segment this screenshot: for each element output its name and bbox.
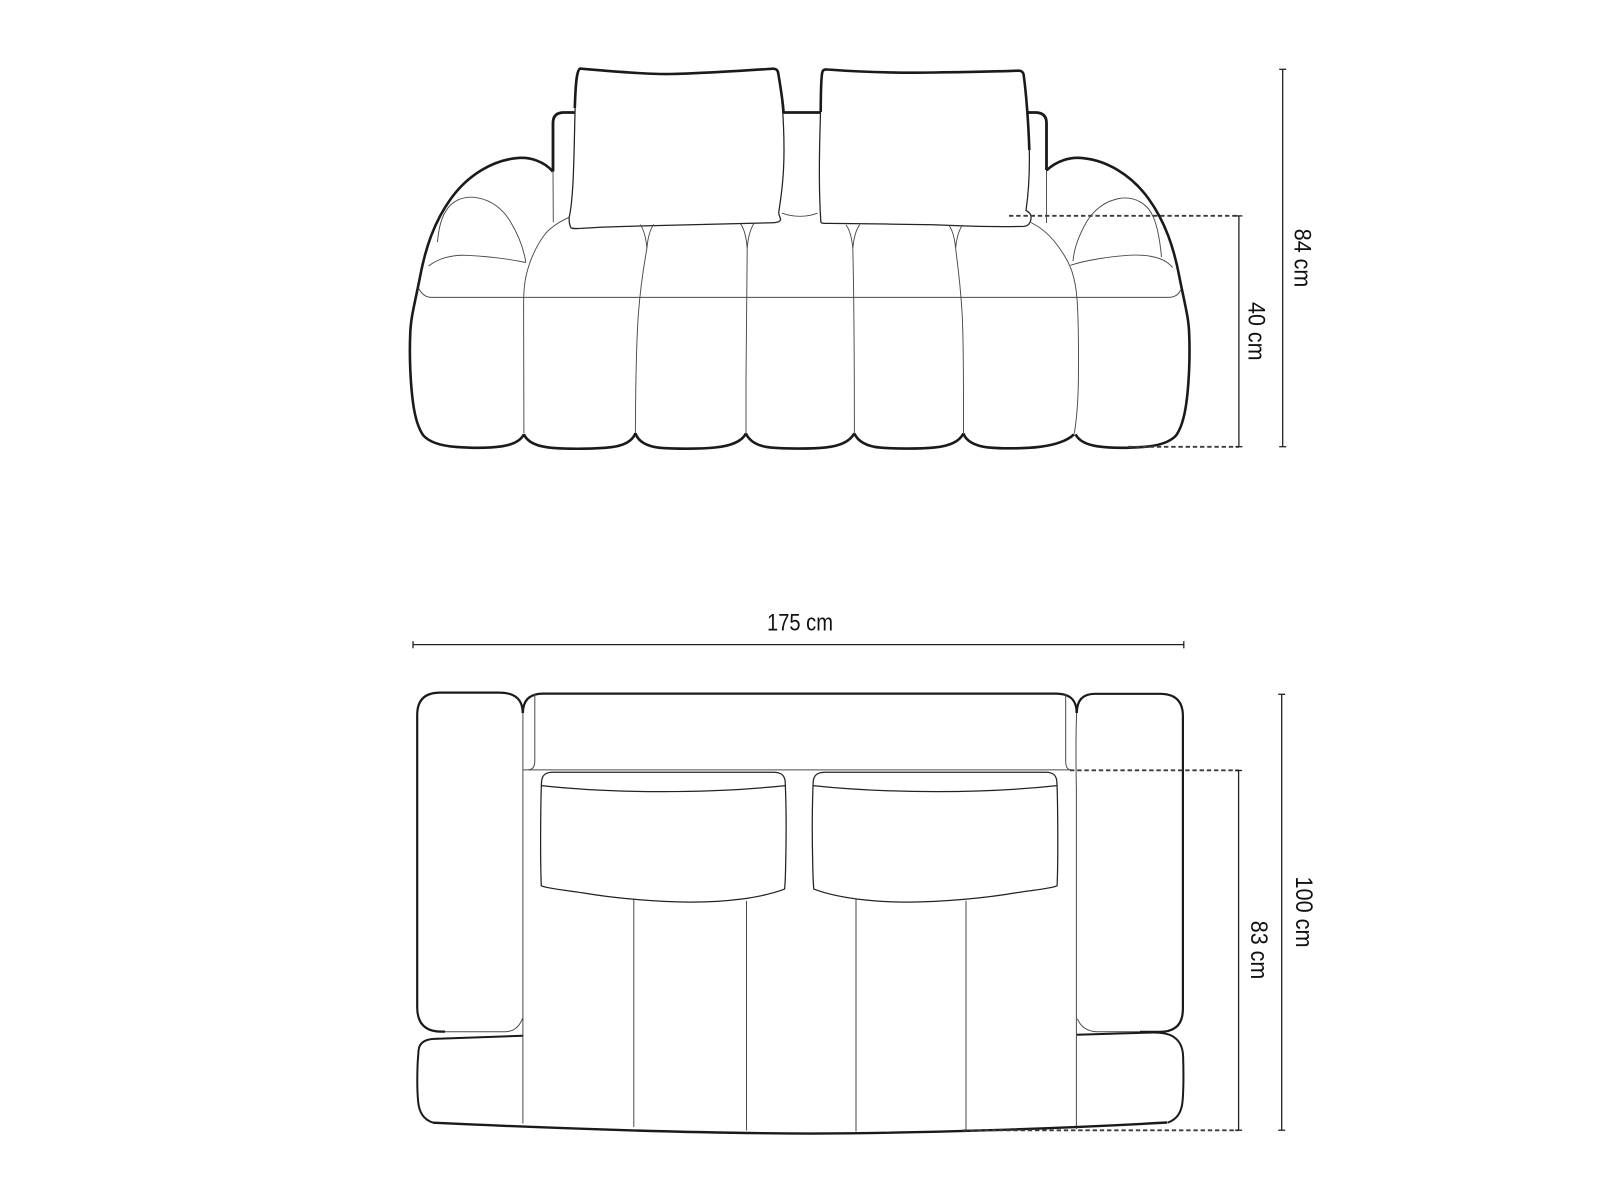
svg-text:83 cm: 83 cm	[1245, 921, 1272, 980]
svg-text:100 cm: 100 cm	[1290, 877, 1317, 948]
svg-text:84 cm: 84 cm	[1289, 229, 1316, 288]
svg-text:40 cm: 40 cm	[1243, 302, 1270, 361]
svg-text:175 cm: 175 cm	[767, 610, 833, 637]
